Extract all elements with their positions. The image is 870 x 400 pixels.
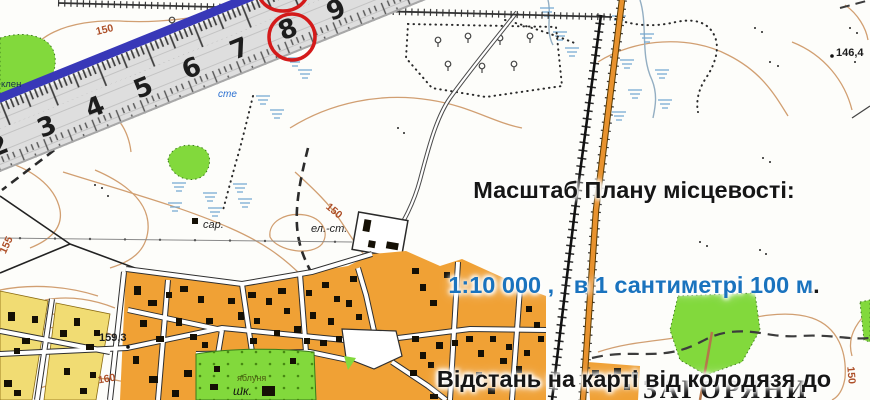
caption-line-3: Відстань на карті від колодязя до	[406, 364, 862, 396]
barn-label: сар.	[203, 220, 224, 231]
school-label: шк.	[233, 385, 252, 397]
power-station	[352, 212, 408, 258]
caption-line-2: 1:10 000 , в 1 сантиметрі 100 м.	[406, 270, 862, 302]
maple-label: клен	[1, 80, 21, 90]
minor-roads	[0, 196, 135, 273]
scale-caption: Масштаб Плану місцевості: 1:10 000 , в 1…	[406, 112, 862, 400]
barn-symbol	[192, 218, 198, 224]
power-station-label: ел.-ст.	[311, 224, 347, 235]
path-label: сте	[218, 90, 237, 100]
orchard-label: яблуня	[237, 374, 266, 383]
map-screenshot: 2 3 4 5 6 7 8 9 150 150 155 160 150 146,…	[0, 0, 870, 400]
elevation-label-159-3: 159,3	[99, 333, 127, 344]
elevation-label-146-4: 146,4	[836, 48, 864, 59]
caption-line-1: Масштаб Плану місцевості:	[406, 175, 862, 207]
